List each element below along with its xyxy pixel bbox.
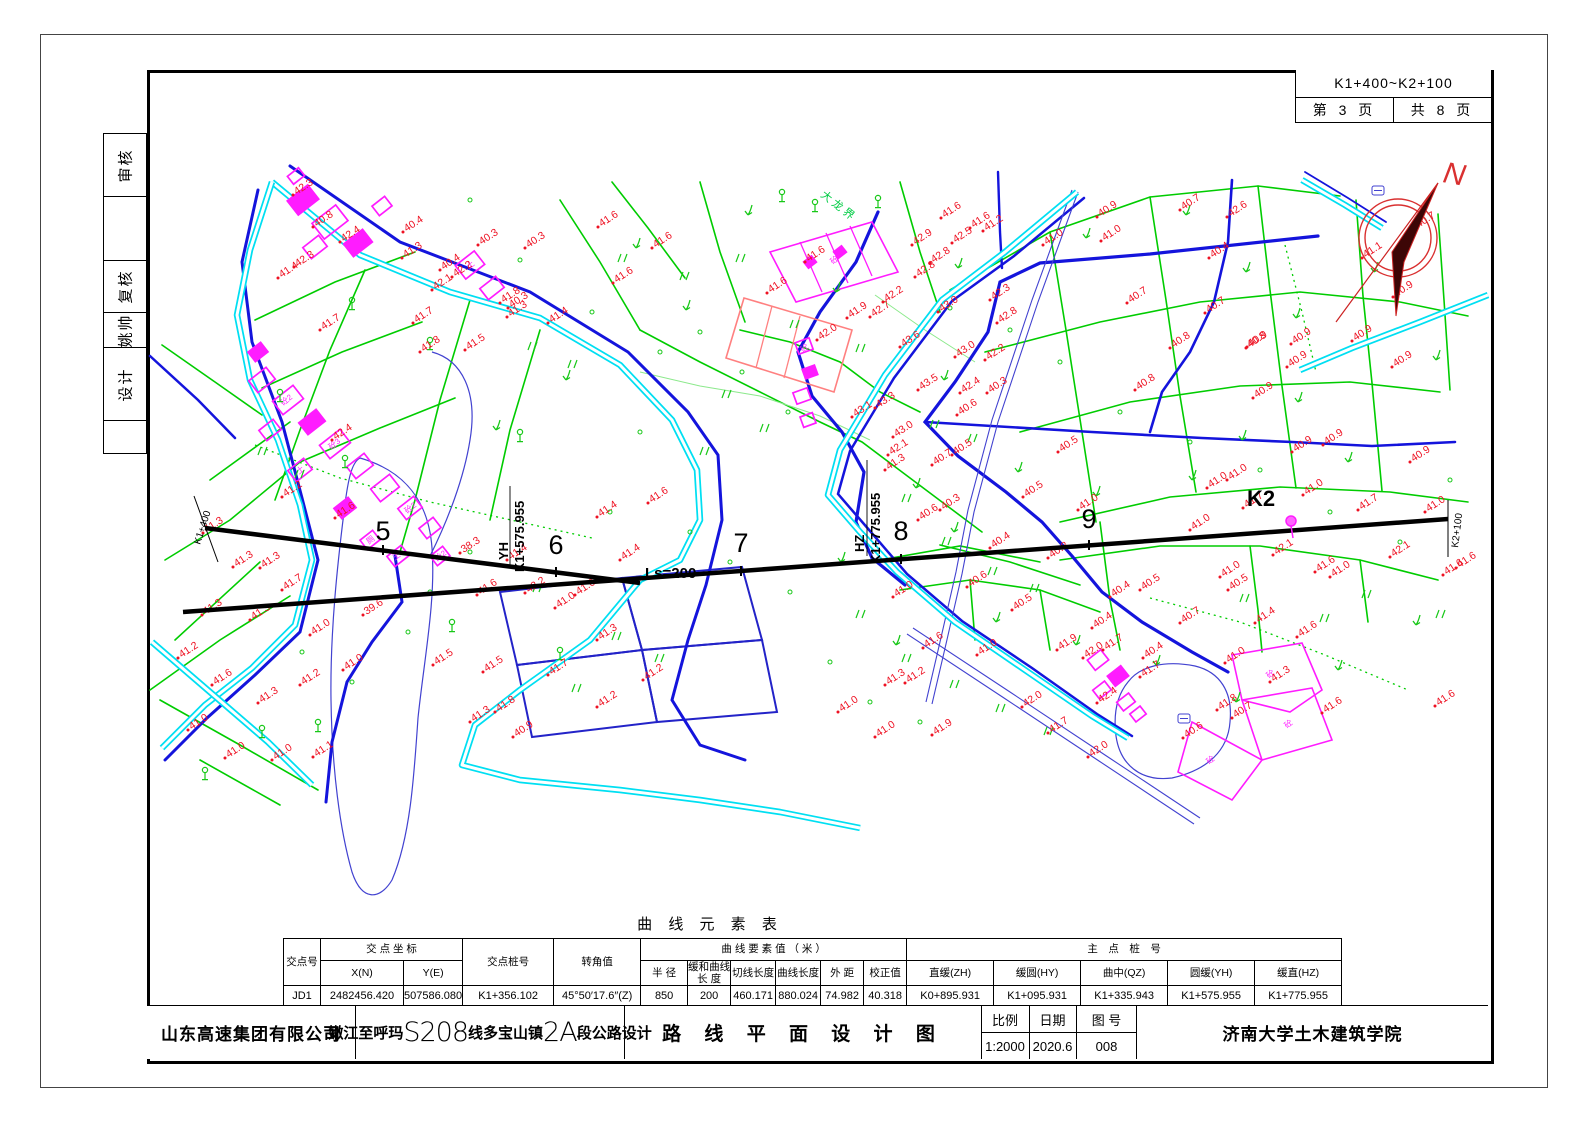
svg-text:41.0: 41.0 [1224,644,1248,665]
station-number: 8 [893,516,908,546]
k2100-tick: K2+100 [1450,512,1465,548]
svg-text:41.6: 41.6 [612,264,636,285]
curve-table-title: 曲 线 元 素 表 [590,913,830,934]
yh-station: K1+575.955 [512,501,527,572]
svg-text:41.6: 41.6 [647,484,671,505]
svg-text:41.2: 41.2 [904,664,928,685]
field-boundary-layer [500,567,777,737]
col-main: 主 点 桩 号 [907,939,1342,961]
svg-text:40.4: 40.4 [989,529,1013,550]
elevation-label-layer: 42.340.842.440.441.340.442.142.341.441.7… [177,176,1479,762]
svg-text:41.3: 41.3 [201,596,225,617]
svg-text:41.6: 41.6 [1455,549,1479,570]
svg-text:41.4: 41.4 [547,304,571,325]
station-k2: K2 [1247,486,1275,511]
svg-text:41.6: 41.6 [1434,687,1458,708]
col-zh: 直缓(ZH) [907,961,994,986]
svg-text:42.1: 42.1 [1272,536,1296,557]
svg-text:40.9: 40.9 [1391,348,1415,369]
scale-label: 比例 [982,1006,1030,1032]
date-label: 日期 [1030,1006,1077,1032]
table-header-row2: X(N) Y(E) 半 径 缓和曲线长 度 切线长度 曲线长度 外 距 校正值 … [284,961,1342,986]
station-number: 5 [375,516,390,546]
scale-date-number-block: 比例 日期 图 号 1:2000 2020.6 008 [982,1006,1137,1059]
yh-label: YH [496,542,511,560]
station-number: 9 [1081,504,1096,534]
svg-text:40.4: 40.4 [1142,639,1166,660]
svg-text:40.4: 40.4 [1109,578,1133,599]
col-hz: 缓直(HZ) [1255,961,1342,986]
svg-text:40.7: 40.7 [1179,604,1203,625]
svg-text:41.6: 41.6 [574,576,598,597]
company-name: 山东高速集团有限公司 [147,1006,356,1059]
svg-text:41.3: 41.3 [259,549,283,570]
svg-text:40.3: 40.3 [477,226,501,247]
svg-text:41.6: 41.6 [766,274,790,295]
col-stake: 交点桩号 [463,939,554,986]
place-name-layer: 大龙界 [818,187,860,224]
svg-text:42.4: 42.4 [959,374,983,395]
col-coord: 交 点 坐 标 [321,939,463,961]
col-hy: 缓圆(HY) [994,961,1081,986]
svg-text:41.0: 41.0 [309,616,333,637]
col-correction: 校正值 [864,961,907,986]
svg-text:41.5: 41.5 [482,653,506,674]
svg-text:41.3: 41.3 [257,684,281,705]
section-code: 2A [543,1017,577,1048]
svg-text:41.0: 41.0 [1226,461,1250,482]
north-letter: N [1441,156,1468,192]
svg-text:40.4: 40.4 [1091,609,1115,630]
svg-text:41.8: 41.8 [419,333,443,354]
k2-pin [1286,516,1296,526]
svg-text:40.6: 40.6 [917,501,941,522]
svg-text:砼: 砼 [1282,717,1294,730]
svg-text:40.7: 40.7 [1204,294,1228,315]
col-jd: 交点号 [284,939,321,986]
col-spiral: 缓和曲线长 度 [688,961,731,986]
hz-label: HZ [852,535,867,552]
svg-text:43.5: 43.5 [917,371,941,392]
svg-text:42.8: 42.8 [996,304,1020,325]
project-name: 嫩江至呼玛S208线多宝山镇2A段公路设计 [356,1006,625,1059]
station-number: 6 [548,530,563,560]
svg-text:40.6: 40.6 [1182,719,1206,740]
svg-text:41.9: 41.9 [931,716,955,737]
hz-station: K1+775.955 [868,493,883,564]
col-qz: 曲中(QZ) [1081,961,1168,986]
svg-text:41.3: 41.3 [1269,663,1293,684]
svg-text:40.5: 40.5 [1057,433,1081,454]
col-xn: X(N) [321,961,404,986]
col-tangent: 切线长度 [731,961,776,986]
svg-text:41.6: 41.6 [597,208,621,229]
svg-text:41.0: 41.0 [874,718,898,739]
col-elements: 曲 线 要 素 值 （ 米 ） [641,939,907,961]
svg-text:41.7: 41.7 [1357,491,1381,512]
svg-text:41.2: 41.2 [596,688,620,709]
ls-label: Ls=200 [645,565,696,582]
svg-text:40.5: 40.5 [1022,478,1046,499]
col-radius: 半 径 [641,961,688,986]
svg-text:41.7: 41.7 [1047,714,1071,735]
svg-text:41.0: 41.0 [554,589,578,610]
svg-text:40.9: 40.9 [1409,443,1433,464]
svg-text:40.9: 40.9 [1252,379,1276,400]
svg-text:41.0: 41.0 [1302,476,1326,497]
svg-text:40.6: 40.6 [956,396,980,417]
col-angle: 转角值 [554,939,641,986]
svg-text:40.3: 40.3 [524,229,548,250]
project-part: 线多宝山镇 [468,1022,543,1043]
station-number: 7 [733,528,748,558]
alignment-layer: 56789K2 [183,486,1448,612]
col-yh: 圆缓(YH) [1168,961,1255,986]
col-curvelen: 曲线长度 [776,961,821,986]
svg-text:40.9: 40.9 [1291,433,1315,454]
number-label: 图 号 [1077,1006,1137,1032]
svg-text:41.0: 41.0 [1100,222,1124,243]
svg-text:41.4: 41.4 [596,498,620,519]
svg-text:大龙界: 大龙界 [818,187,860,224]
svg-text:41.6: 41.6 [1321,694,1345,715]
table-header-row1: 交点号 交 点 坐 标 交点桩号 转角值 曲 线 要 素 值 （ 米 ） 主 点… [284,939,1342,961]
svg-text:40.9: 40.9 [1096,198,1120,219]
svg-text:41.0: 41.0 [1189,511,1213,532]
svg-text:41.0: 41.0 [187,711,211,732]
svg-text:40.5: 40.5 [1139,571,1163,592]
svg-text:42.2: 42.2 [984,341,1008,362]
svg-text:40.5: 40.5 [1011,591,1035,612]
svg-text:41.7: 41.7 [1139,658,1163,679]
svg-text:40.7: 40.7 [1126,284,1150,305]
svg-text:40.8: 40.8 [1134,371,1158,392]
svg-text:41.6: 41.6 [334,499,358,520]
svg-text:42.6: 42.6 [1226,198,1250,219]
svg-text:41.9: 41.9 [1056,631,1080,652]
title-bar: 山东高速集团有限公司 嫩江至呼玛S208线多宝山镇2A段公路设计 路 线 平 面… [147,1005,1488,1059]
svg-text:41.7: 41.7 [281,571,305,592]
drawing-sheet: 审核 复核 姚帅 设计 K1+400~K2+100 第 3 页 共 8 页 砼2… [0,0,1588,1122]
svg-text:42.3: 42.3 [989,281,1013,302]
svg-text:40.8: 40.8 [1169,329,1193,350]
svg-text:41.6: 41.6 [1296,618,1320,639]
drawing-title: 路 线 平 面 设 计 图 [625,1006,982,1059]
col-external: 外 距 [821,961,864,986]
building-layer: 砼2砼3王土砼2砼2土厕砼砼砼砼砼砼 [248,168,1332,800]
svg-text:41.5: 41.5 [464,331,488,352]
svg-text:40.4: 40.4 [402,213,426,234]
svg-text:41.4: 41.4 [619,541,643,562]
svg-text:41.6: 41.6 [940,199,964,220]
svg-text:41.2: 41.2 [299,666,323,687]
svg-text:38.3: 38.3 [459,534,483,555]
date-value: 2020.6 [1030,1033,1077,1059]
land-symbol-layer [202,186,1452,780]
svg-text:41.0: 41.0 [837,693,861,714]
svg-text:40.6: 40.6 [966,568,990,589]
college-name: 济南大学土木建筑学院 [1137,1006,1488,1059]
svg-text:41.7: 41.7 [412,304,436,325]
scale-value: 1:2000 [982,1033,1030,1059]
svg-text:41.0: 41.0 [224,739,248,760]
project-part: 嫩江至呼玛 [328,1022,403,1043]
svg-text:41.9: 41.9 [846,299,870,320]
svg-text:40.5: 40.5 [951,436,975,457]
svg-text:42.4: 42.4 [331,421,355,442]
svg-text:40.9: 40.9 [1290,325,1314,346]
svg-text:42.1: 42.1 [1389,538,1413,559]
svg-text:41.5: 41.5 [432,646,456,667]
svg-text:砼: 砼 [798,341,810,354]
number-value: 008 [1077,1033,1137,1059]
svg-text:41.3: 41.3 [232,548,256,569]
curve-element-table: 交点号 交 点 坐 标 交点桩号 转角值 曲 线 要 素 值 （ 米 ） 主 点… [283,938,1342,1008]
route-number: S208 [403,1017,468,1048]
col-ye: Y(E) [404,961,463,986]
